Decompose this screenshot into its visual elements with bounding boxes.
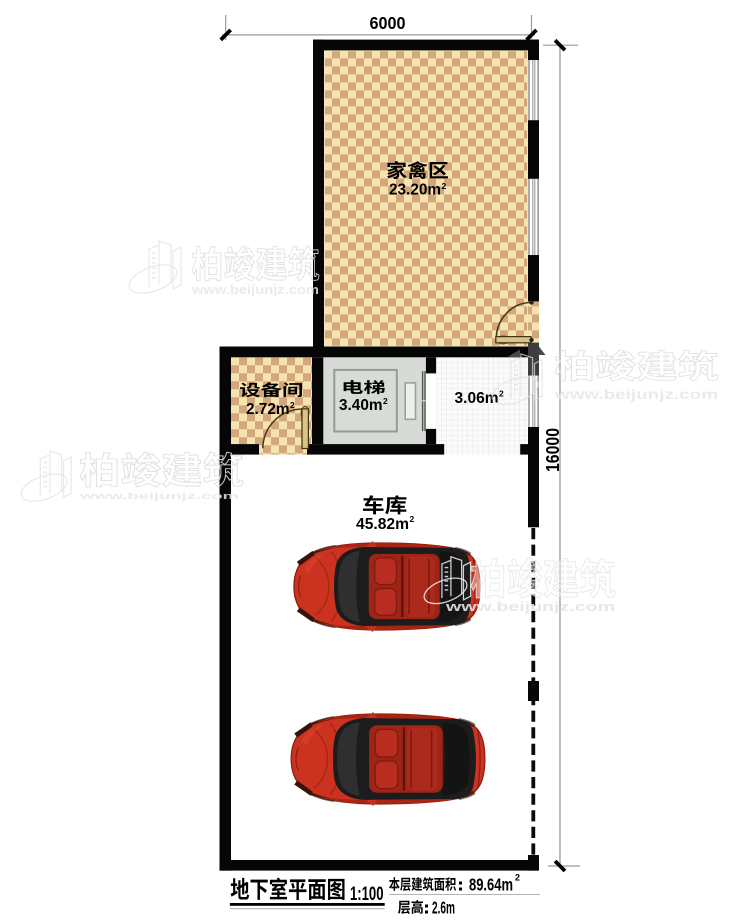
svg-text:23.20m: 23.20m [389,182,441,199]
svg-text:2: 2 [383,396,388,406]
svg-text:2: 2 [515,873,520,883]
svg-text:2: 2 [410,514,415,524]
svg-text:www.beijunjz.com: www.beijunjz.com [554,387,718,403]
svg-text:16000: 16000 [542,428,563,472]
svg-text:3.40m: 3.40m [339,397,383,414]
svg-text:89.64m: 89.64m [469,875,513,895]
svg-text:www.beijunjz.com: www.beijunjz.com [444,599,615,614]
svg-text:2: 2 [442,181,447,191]
svg-text:45.82m: 45.82m [356,516,409,533]
svg-text:2: 2 [499,389,504,399]
svg-text:www.beijunjz.com: www.beijunjz.com [78,490,239,501]
svg-text:2: 2 [290,400,295,410]
svg-text:2.72m: 2.72m [246,401,290,418]
svg-text:1:100: 1:100 [350,884,384,905]
svg-text:6000: 6000 [370,13,406,33]
svg-text:2.6m: 2.6m [432,898,455,918]
svg-text:www.beijunjz.com: www.beijunjz.com [191,282,319,297]
